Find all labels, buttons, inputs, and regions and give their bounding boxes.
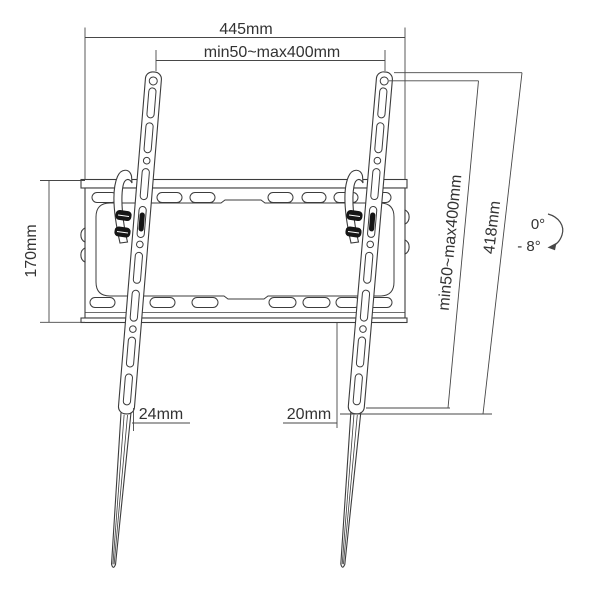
dim-overall-width-label: 445mm: [219, 21, 272, 38]
dim-plate-height: 170mm: [23, 181, 85, 323]
dim-vesa-height-label: min50~max400mm: [436, 174, 466, 311]
dim-vesa-width-label: min50~max400mm: [204, 44, 341, 61]
dim-bracket-length-label: 418mm: [481, 200, 504, 255]
dim-right-bottom-offset: 20mm: [283, 323, 337, 428]
dim-plate-height-label: 170mm: [23, 224, 40, 277]
right-edge-tab: [405, 210, 409, 224]
dim-left-bottom-offset: 24mm: [132, 406, 190, 431]
dim-right-bottom-offset-label: 20mm: [287, 406, 331, 423]
right-edge-tab: [405, 240, 409, 254]
left-edge-tab: [81, 248, 85, 262]
dim-vesa-width: min50~max400mm: [156, 44, 385, 71]
dim-left-bottom-offset-label: 24mm: [139, 406, 183, 423]
tilt-lower-label: - 8°: [517, 238, 541, 255]
tilt-annotation: 0° - 8°: [517, 214, 563, 255]
tilt-arc-arrow-icon: [548, 214, 563, 250]
technical-drawing: 445mm min50~max400mm 170mm min50~max400m…: [0, 0, 600, 600]
left-edge-tab: [81, 228, 85, 242]
tilt-upper-label: 0°: [531, 216, 545, 233]
